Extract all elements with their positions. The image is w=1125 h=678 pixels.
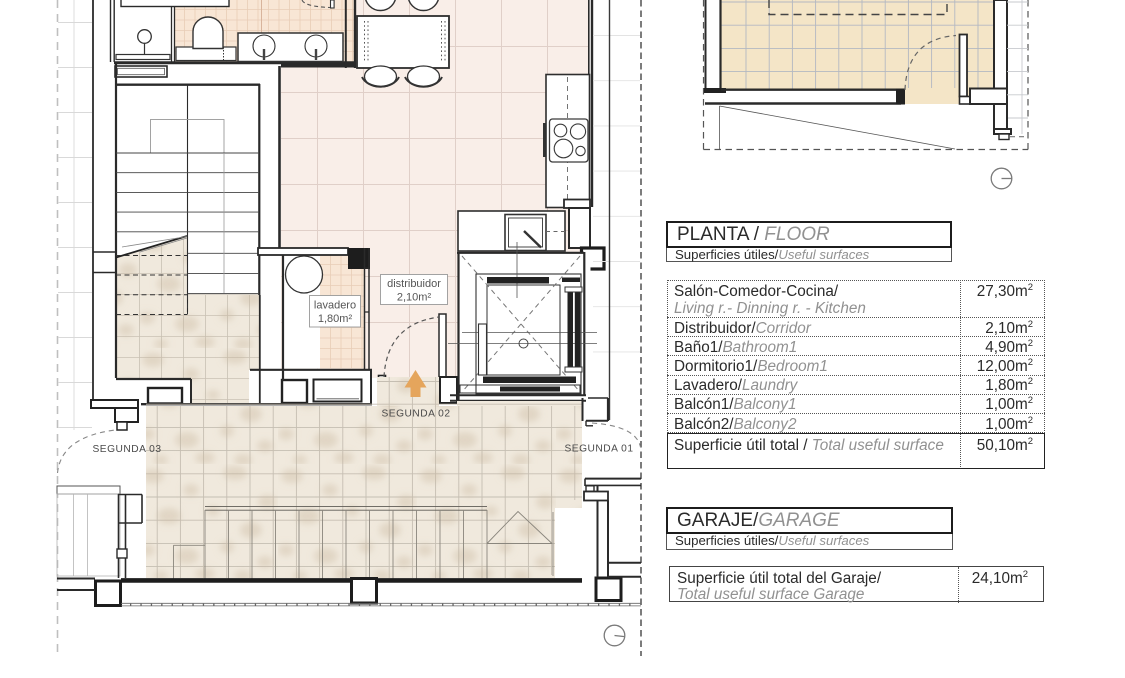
svg-text:SEGUNDA 03: SEGUNDA 03: [93, 444, 162, 455]
svg-text:lavadero: lavadero: [314, 300, 356, 312]
svg-text:SEGUNDA 02: SEGUNDA 02: [382, 409, 451, 420]
svg-text:distribuidor: distribuidor: [387, 278, 441, 290]
svg-text:SEGUNDA 01: SEGUNDA 01: [565, 444, 634, 455]
svg-text:2,10m²: 2,10m²: [397, 292, 432, 304]
svg-text:1,80m²: 1,80m²: [318, 313, 353, 325]
